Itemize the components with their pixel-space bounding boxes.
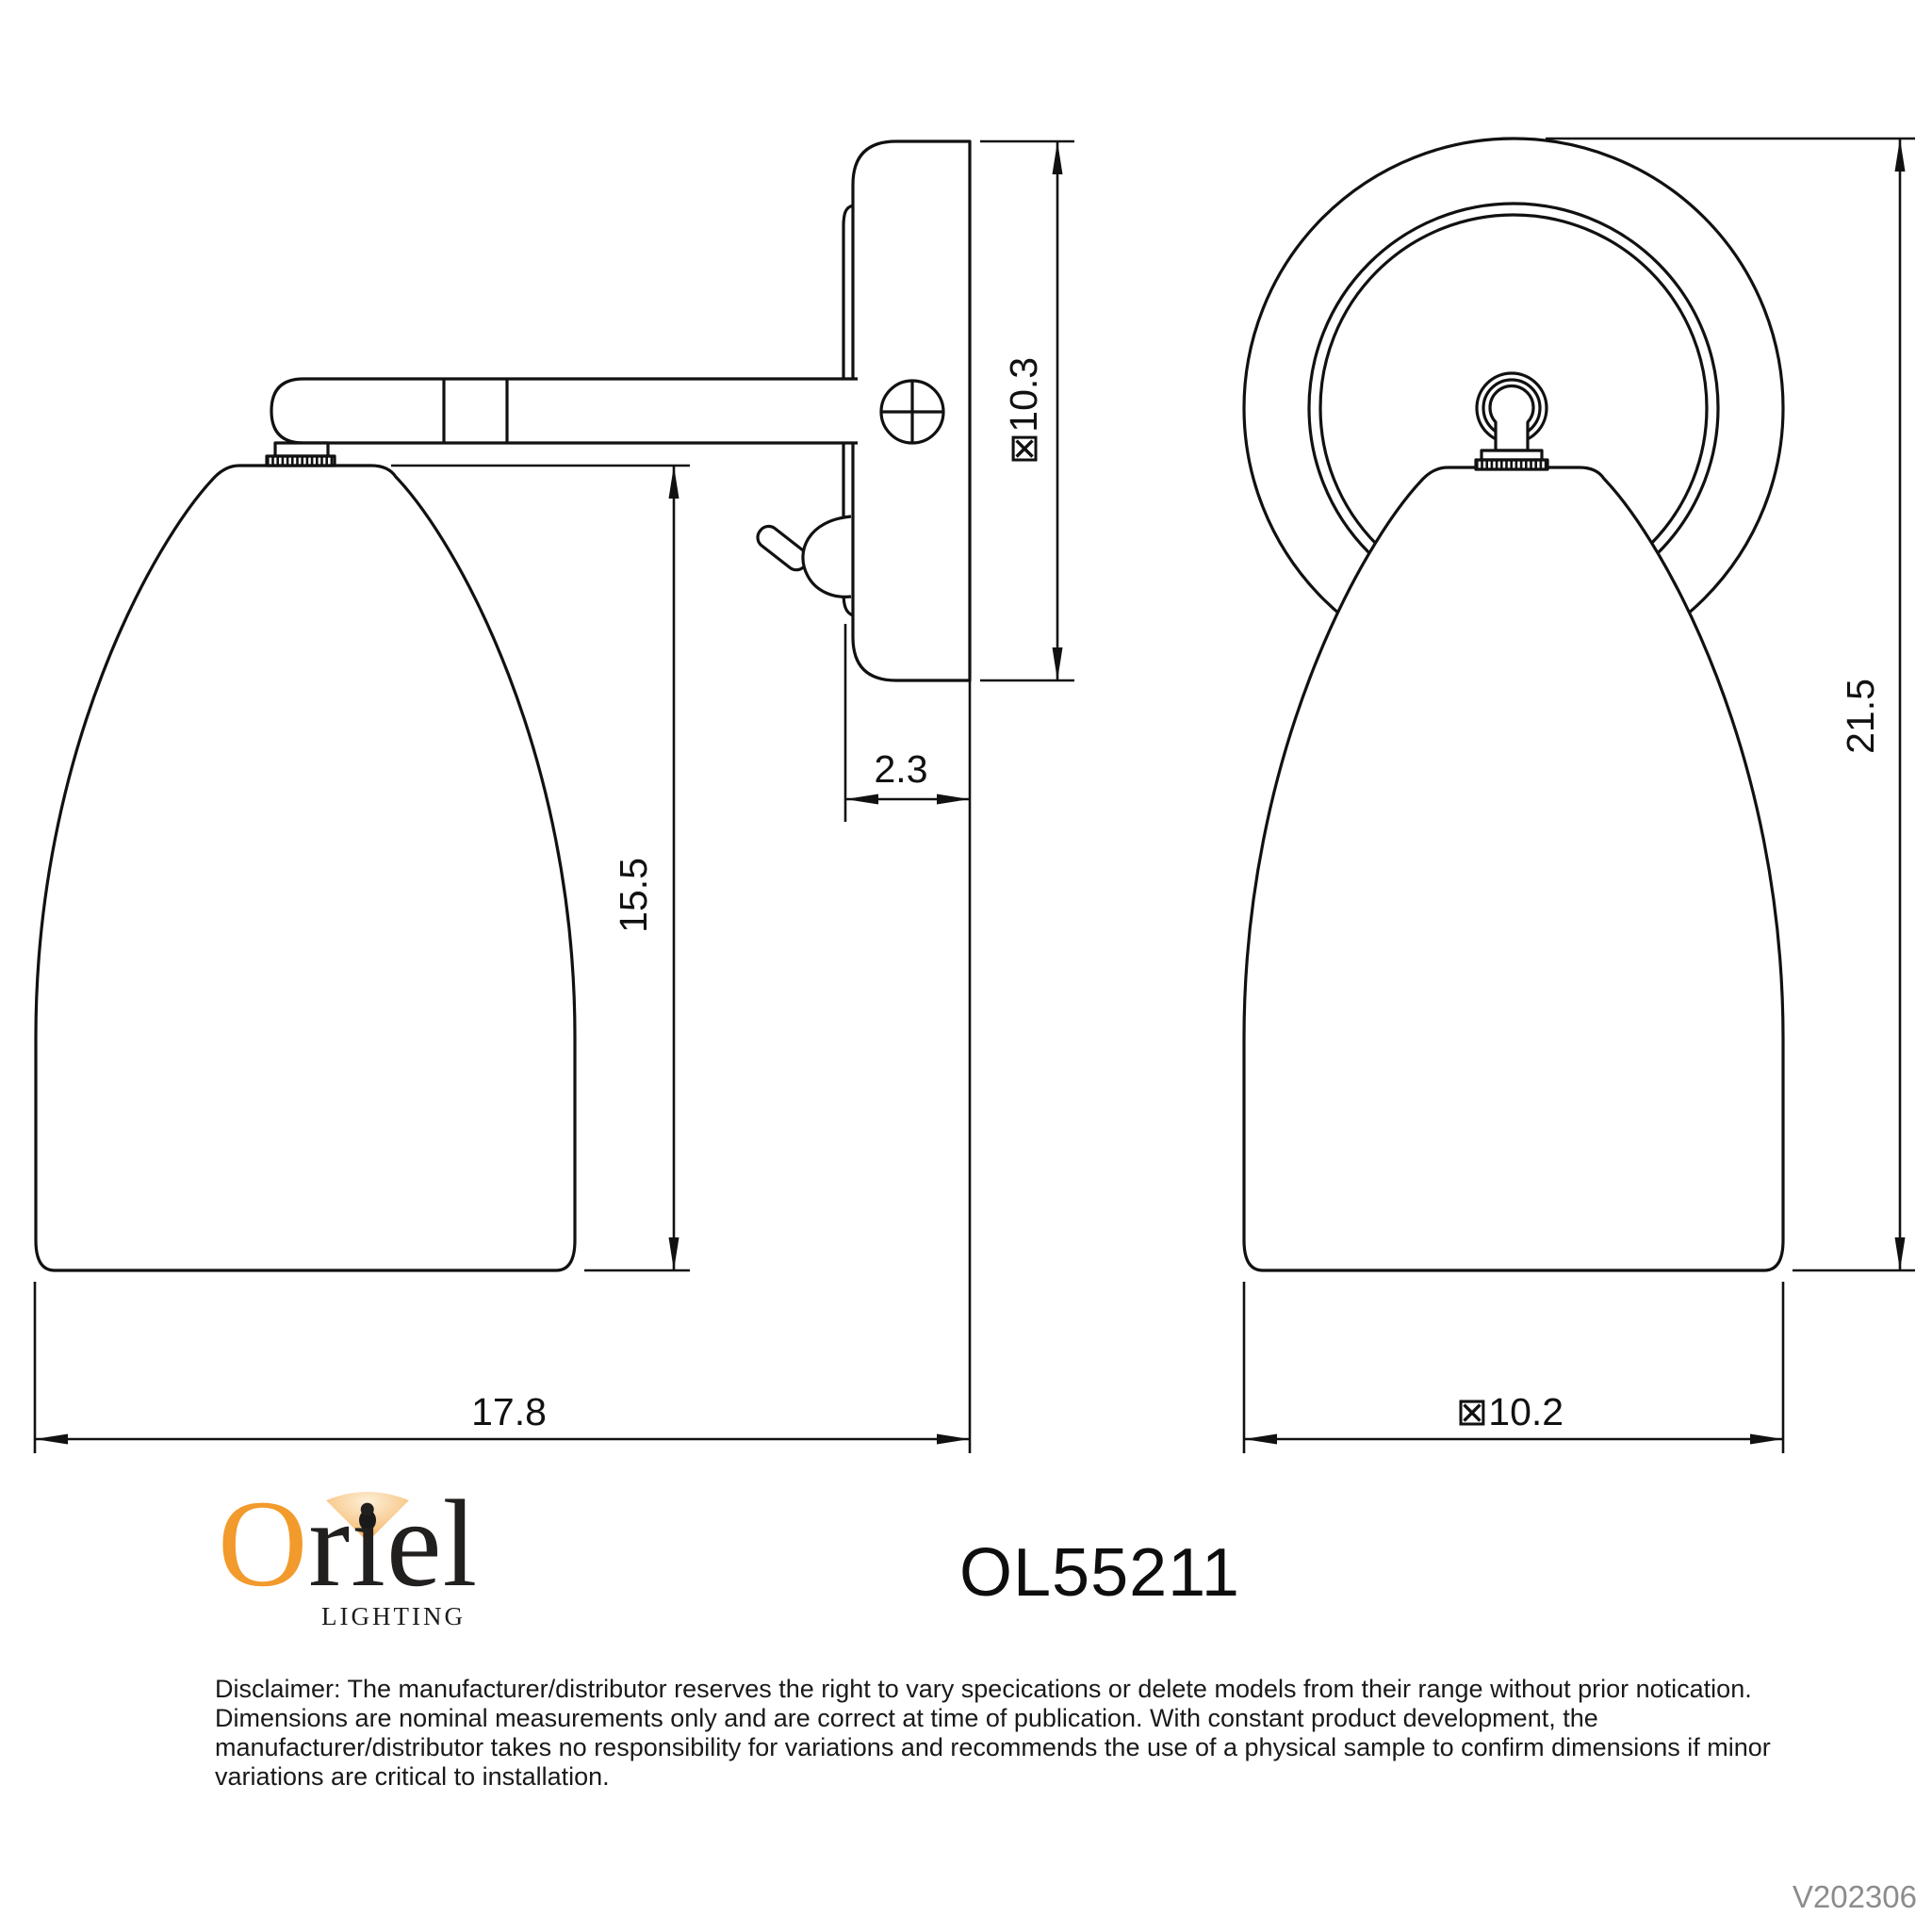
dim-plate-depth: 2.3 xyxy=(845,624,970,1453)
front-view xyxy=(1244,139,1783,1270)
dim-label-projection: 17.8 xyxy=(471,1390,547,1433)
arm-side xyxy=(271,379,858,443)
toggle-switch xyxy=(803,516,851,597)
shade-front xyxy=(1244,467,1783,1270)
shade-neck xyxy=(275,443,328,456)
spec-sheet-page: ⊠10.3 2.3 15.5 17.8 xyxy=(0,0,1932,1932)
dim-label-plate-height: ⊠10.3 xyxy=(1002,357,1045,465)
logo-letter-o: O xyxy=(218,1474,308,1613)
shade-side xyxy=(36,466,575,1270)
dim-plate-height: ⊠10.3 xyxy=(980,141,1074,680)
technical-drawing: ⊠10.3 2.3 15.5 17.8 xyxy=(0,0,1932,1932)
logo-subtitle: LIGHTING xyxy=(321,1602,466,1631)
side-view xyxy=(36,141,970,1270)
dim-label-overall-height: 21.5 xyxy=(1839,679,1882,754)
model-number: OL55211 xyxy=(959,1534,1240,1612)
dim-label-shade-diameter: ⊠10.2 xyxy=(1456,1390,1564,1433)
disclaimer-text: Disclaimer: The manufacturer/distributor… xyxy=(215,1675,1771,1792)
dim-projection: 17.8 xyxy=(35,1282,970,1453)
disclaimer-line: Dimensions are nominal measurements only… xyxy=(215,1704,1771,1733)
brand-logo: Oriel xyxy=(218,1482,478,1606)
disclaimer-line: Disclaimer: The manufacturer/distributor… xyxy=(215,1675,1771,1704)
logo-letters-riel: riel xyxy=(308,1474,478,1613)
dim-label-shade-drop: 15.5 xyxy=(612,858,655,933)
disclaimer-line: variations are critical to installation. xyxy=(215,1762,1771,1792)
dim-shade-diameter: ⊠10.2 xyxy=(1244,1282,1783,1453)
version-code: V202306 xyxy=(1793,1879,1917,1915)
pivot-knuckle xyxy=(1476,373,1547,469)
screw-icon xyxy=(881,381,943,443)
dim-label-plate-depth: 2.3 xyxy=(875,747,928,791)
disclaimer-line: manufacturer/distributor takes no respon… xyxy=(215,1733,1771,1762)
